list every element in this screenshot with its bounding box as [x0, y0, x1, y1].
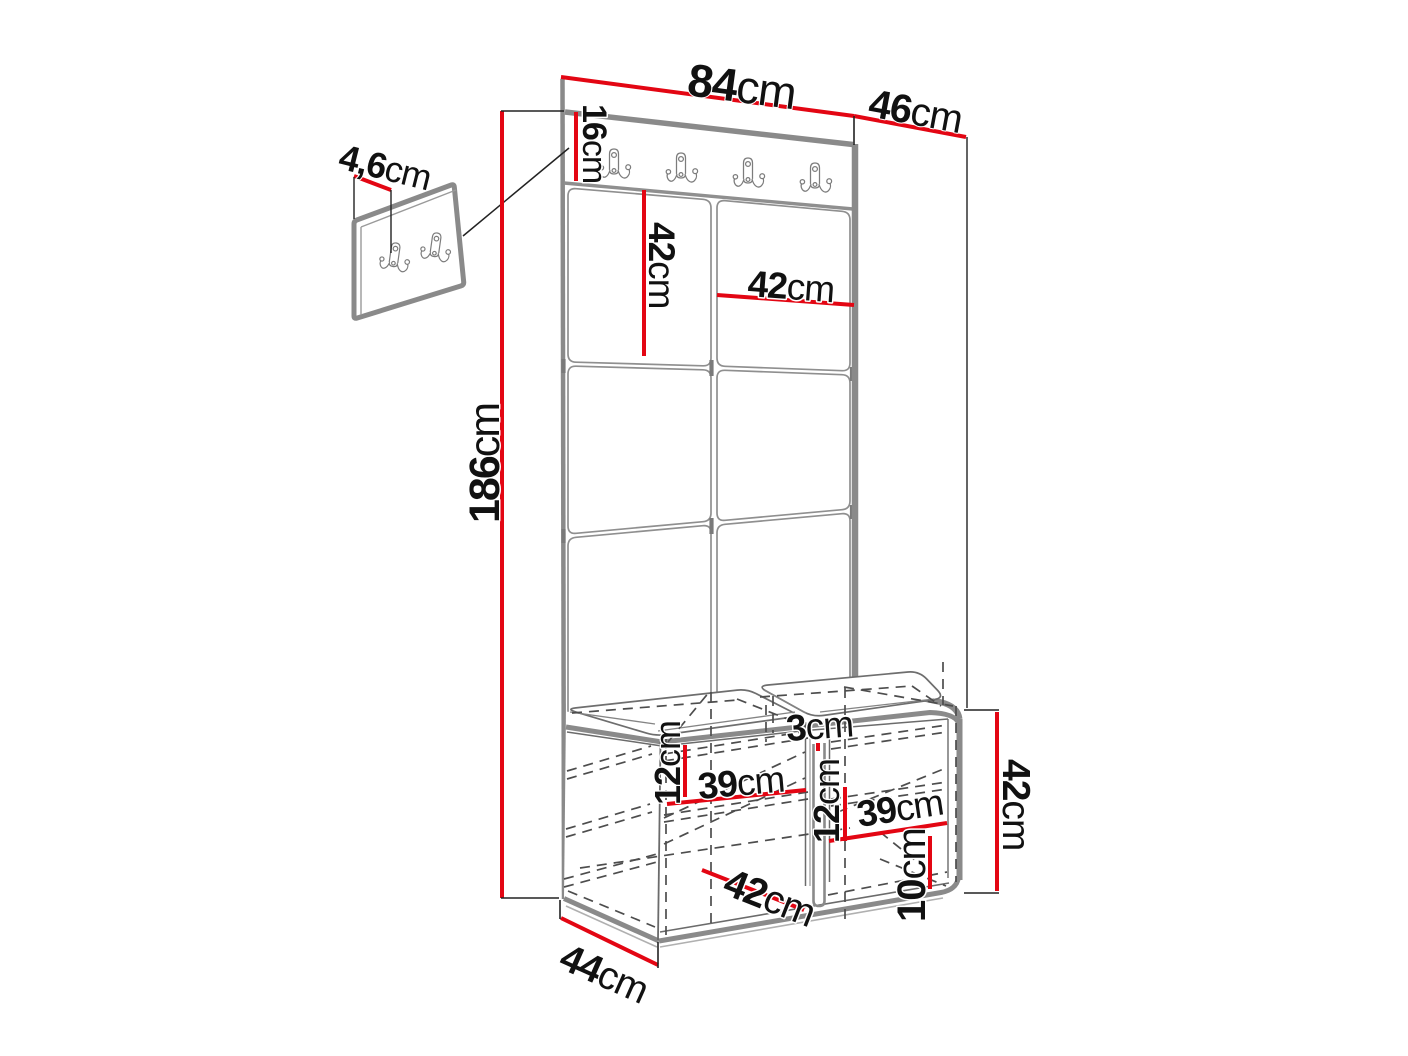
- svg-text:39cm: 39cm: [696, 759, 786, 807]
- svg-text:42cm: 42cm: [994, 759, 1037, 850]
- svg-text:42cm: 42cm: [746, 263, 835, 310]
- svg-text:46cm: 46cm: [865, 82, 965, 142]
- svg-text:42cm: 42cm: [641, 222, 682, 308]
- svg-text:3cm: 3cm: [785, 703, 855, 749]
- svg-text:12cm: 12cm: [647, 721, 688, 805]
- svg-text:44cm: 44cm: [553, 936, 654, 1012]
- svg-text:10cm: 10cm: [890, 828, 934, 922]
- svg-text:186cm: 186cm: [461, 404, 509, 523]
- svg-text:16cm: 16cm: [575, 104, 613, 183]
- svg-text:12cm: 12cm: [806, 759, 847, 843]
- svg-text:84cm: 84cm: [685, 53, 799, 119]
